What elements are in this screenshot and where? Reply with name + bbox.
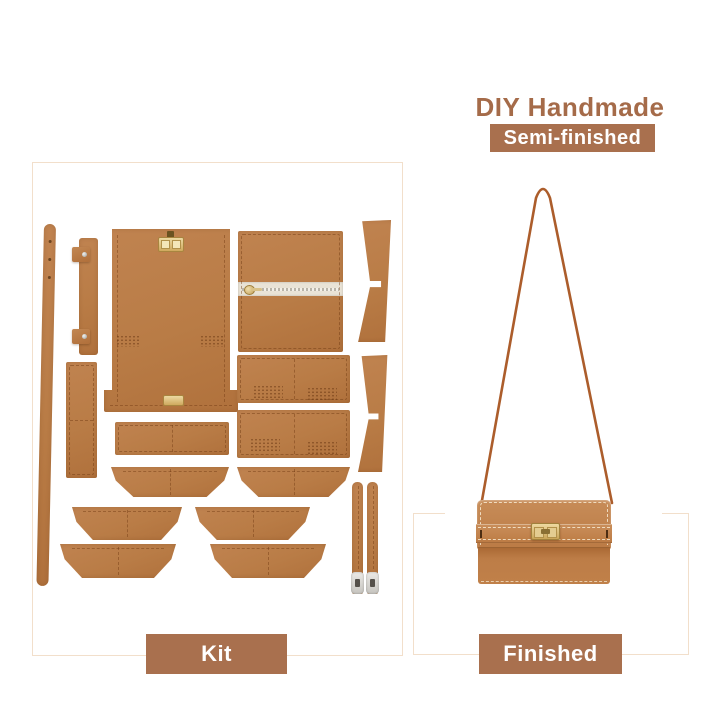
kit-piece-pocket-panel-upper bbox=[237, 355, 350, 403]
zipper-pull-icon bbox=[244, 285, 255, 295]
product-image: DIY Handmade Semi-finished bbox=[0, 0, 720, 720]
finished-label: Finished bbox=[479, 634, 622, 674]
finished-frame-left bbox=[413, 513, 414, 655]
kit-piece-buckle-strap-left bbox=[352, 482, 363, 594]
zipper-band bbox=[238, 282, 343, 296]
rivet-tab-bottom bbox=[72, 329, 90, 344]
bottom-plate-icon bbox=[163, 395, 184, 406]
kit-piece-zipper-pocket bbox=[238, 231, 343, 352]
page-title: DIY Handmade bbox=[460, 92, 680, 123]
kit-piece-small-side-panel bbox=[66, 362, 97, 478]
kit-piece-trapezoid-bottom-right bbox=[210, 544, 326, 578]
kit-piece-pocket-panel-lower bbox=[237, 410, 350, 458]
semi-finished-badge: Semi-finished bbox=[490, 124, 655, 152]
shoulder-strap bbox=[440, 172, 660, 512]
kit-label: Kit bbox=[146, 634, 287, 674]
turnlock-plate-icon bbox=[158, 237, 184, 252]
kit-piece-buckle-strap-right bbox=[367, 482, 378, 594]
kit-piece-bottom-gusset-right bbox=[237, 467, 350, 497]
kit-piece-trapezoid-mid-left bbox=[72, 507, 182, 540]
finished-frame-right bbox=[688, 513, 689, 655]
strap-metal-tip-icon bbox=[351, 572, 364, 594]
kit-piece-trapezoid-bottom-left bbox=[60, 544, 176, 578]
rivet-tab-top bbox=[72, 247, 90, 262]
bag-turnlock-clasp-icon bbox=[531, 523, 560, 540]
kit-piece-bottom-gusset-left bbox=[111, 467, 229, 497]
kit-piece-trapezoid-mid-right bbox=[195, 507, 310, 540]
strap-metal-tip-icon bbox=[366, 572, 379, 594]
finished-frame-top-a bbox=[413, 513, 445, 514]
finished-frame-top-b bbox=[662, 513, 689, 514]
kit-piece-main-body-panel bbox=[104, 229, 238, 412]
kit-piece-cross-bar-panel bbox=[115, 422, 229, 455]
finished-bag bbox=[477, 500, 611, 584]
